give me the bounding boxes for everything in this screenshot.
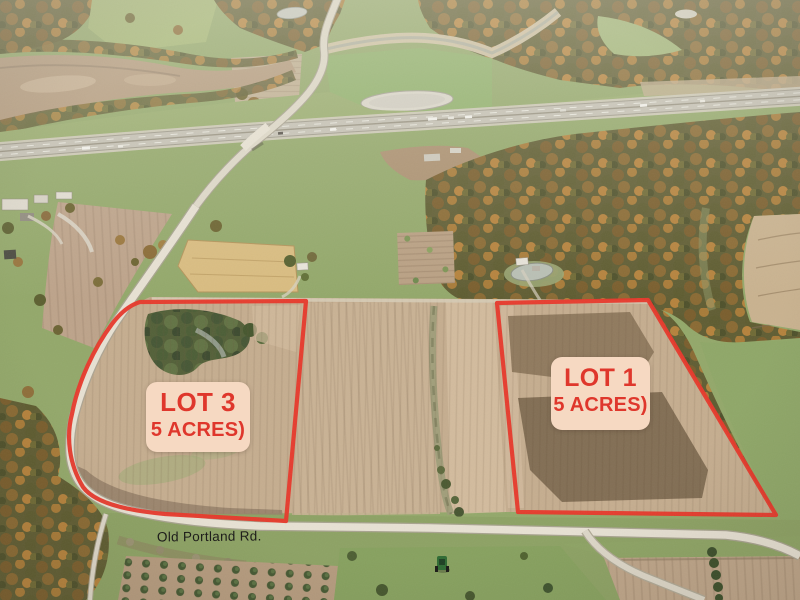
grain-overlay	[0, 0, 800, 600]
lot-3-label: LOT 3 5 ACRES)	[146, 382, 250, 452]
lot-3-name: LOT 3	[146, 389, 250, 416]
lot-1-size: 5 ACRES)	[551, 394, 650, 417]
road-name-label: Old Portland Rd.	[157, 528, 262, 544]
lot-1-label: LOT 1 5 ACRES)	[551, 357, 650, 430]
aerial-photo: LOT 3 5 ACRES) LOT 1 5 ACRES) Old Portla…	[0, 0, 800, 600]
lot-3-size: 5 ACRES)	[146, 419, 250, 442]
lot-1-name: LOT 1	[551, 365, 650, 391]
aerial-scene	[0, 0, 800, 600]
